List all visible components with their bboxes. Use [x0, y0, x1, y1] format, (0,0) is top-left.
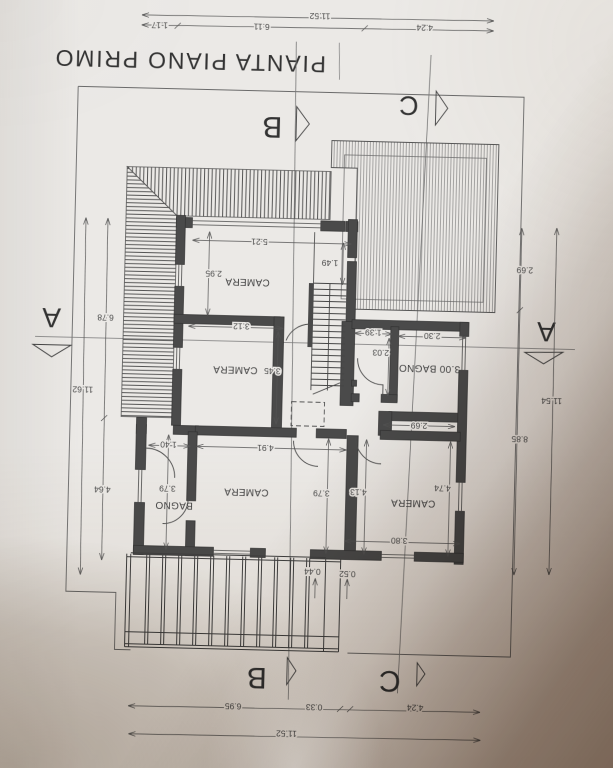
svg-text:4.91: 4.91 [257, 443, 274, 453]
svg-text:CAMERA: CAMERA [224, 485, 269, 497]
svg-text:PIANTA PIANO PRIMO: PIANTA PIANO PRIMO [53, 45, 326, 78]
svg-text:B: B [246, 661, 267, 694]
svg-text:5.21: 5.21 [251, 236, 268, 246]
svg-text:0.33: 0.33 [305, 702, 322, 712]
svg-text:3.12: 3.12 [233, 321, 250, 331]
svg-text:4.24: 4.24 [406, 702, 423, 712]
svg-text:6.78: 6.78 [97, 313, 114, 323]
svg-text:B: B [262, 110, 283, 143]
svg-text:3.79: 3.79 [159, 483, 176, 493]
svg-text:8.85: 8.85 [511, 434, 528, 444]
svg-text:6.95: 6.95 [224, 701, 241, 711]
svg-text:BAGNO: BAGNO [155, 499, 193, 511]
svg-text:3.80: 3.80 [391, 536, 408, 546]
svg-text:CAMERA: CAMERA [213, 363, 258, 375]
svg-text:1.17: 1.17 [151, 20, 168, 30]
svg-text:4.24: 4.24 [416, 22, 433, 32]
svg-text:3.00 BAGNO: 3.00 BAGNO [399, 362, 461, 374]
svg-text:0.52: 0.52 [339, 569, 356, 579]
svg-text:4.74: 4.74 [434, 483, 451, 493]
svg-text:1.39: 1.39 [365, 327, 382, 337]
svg-text:11.54: 11.54 [541, 395, 562, 406]
svg-text:6.11: 6.11 [253, 21, 269, 31]
svg-text:0.44: 0.44 [304, 567, 321, 577]
svg-text:3.79: 3.79 [313, 488, 330, 498]
svg-text:2.30: 2.30 [424, 331, 441, 341]
svg-text:4.13: 4.13 [350, 487, 367, 497]
svg-text:2.03: 2.03 [372, 347, 389, 357]
svg-text:A: A [42, 302, 62, 333]
svg-text:CAMERA: CAMERA [225, 275, 270, 287]
svg-text:3.45: 3.45 [264, 366, 281, 376]
svg-text:4.64: 4.64 [94, 485, 111, 495]
svg-text:A: A [536, 316, 556, 347]
svg-text:C: C [399, 90, 419, 120]
svg-text:2.95: 2.95 [205, 268, 222, 278]
svg-text:1.49: 1.49 [321, 258, 338, 268]
svg-text:11.52: 11.52 [309, 11, 330, 22]
svg-text:C: C [379, 664, 401, 698]
svg-text:2.69: 2.69 [410, 420, 427, 430]
svg-text:11.62: 11.62 [72, 384, 93, 395]
svg-text:1.40: 1.40 [160, 439, 177, 449]
svg-text:2.69: 2.69 [516, 265, 533, 275]
svg-text:11.52: 11.52 [276, 728, 297, 739]
svg-text:CAMERA: CAMERA [391, 496, 436, 508]
